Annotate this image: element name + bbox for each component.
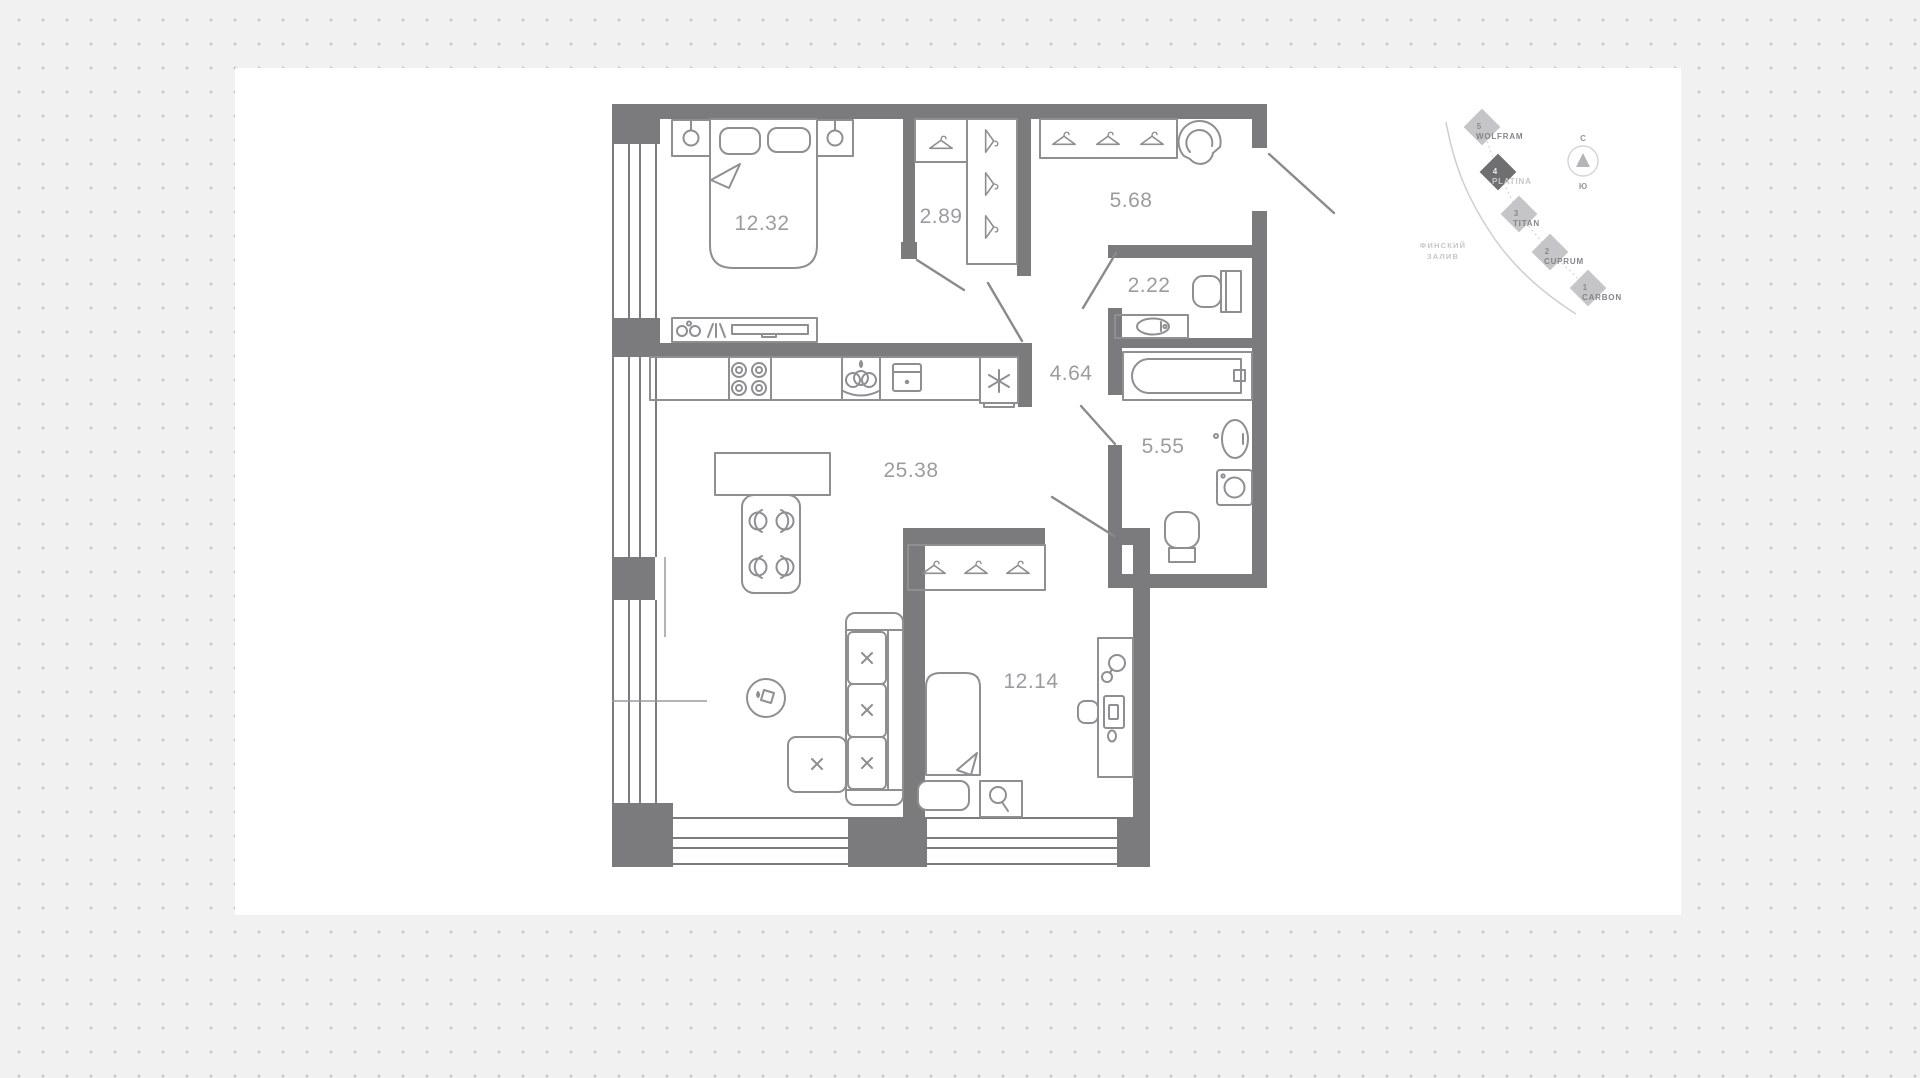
kitchen-counter xyxy=(650,357,1018,407)
page: { "floor_plan": { "rooms": [ {"name": "b… xyxy=(0,0,1920,1078)
room-area-wardrobe: 2.89 xyxy=(920,205,963,228)
wc-sink-icon xyxy=(1115,315,1188,338)
building-name: TITAN xyxy=(1513,219,1540,228)
entry-hall-furniture xyxy=(1040,119,1221,164)
building-marker-titan[interactable]: 3 TITAN xyxy=(1501,196,1540,233)
room-area-bathroom: 5.55 xyxy=(1142,435,1185,458)
kitchen-door-leaf xyxy=(988,283,1022,341)
pillow-icon xyxy=(720,128,760,154)
desk-chair-icon xyxy=(1078,701,1098,723)
water-label-line1: ФИНСКИЙ xyxy=(1420,241,1466,250)
window-left xyxy=(613,144,656,803)
room-area-wc: 2.22 xyxy=(1128,274,1171,297)
lamp-icon xyxy=(684,131,699,146)
building-name: CARBON xyxy=(1582,293,1622,302)
site-map: ФИНСКИЙ ЗАЛИВ 5 WOLFRAM 4 PLATINA 3 TITA… xyxy=(1400,95,1650,325)
building-number: 1 xyxy=(1583,283,1588,292)
stove-icon xyxy=(732,363,766,395)
hanger-icon xyxy=(1141,132,1163,144)
fridge-icon xyxy=(980,357,1018,407)
hanger-rail xyxy=(908,545,1045,590)
water-label-line2: ЗАЛИВ xyxy=(1427,252,1459,261)
bath-sink-icon xyxy=(1214,420,1248,458)
washing-machine-icon xyxy=(1217,470,1252,505)
hanger-icon xyxy=(923,561,945,573)
hanger-icon xyxy=(965,561,987,573)
oven-icon xyxy=(893,364,921,391)
dresser-icon xyxy=(672,318,817,342)
building-number: 2 xyxy=(1545,247,1550,256)
building-name: CUPRUM xyxy=(1544,257,1584,266)
pillow-icon xyxy=(768,128,810,152)
entrance-door-leaf xyxy=(1269,154,1334,213)
building-marker-platina[interactable]: 4 PLATINA xyxy=(1480,154,1532,191)
building-marker-wolfram[interactable]: 5 WOLFRAM xyxy=(1464,109,1524,146)
lamp-icon xyxy=(828,131,843,146)
hanger-icon xyxy=(1053,132,1075,144)
dining-table-icon xyxy=(742,495,800,593)
hanger-icon xyxy=(930,136,952,148)
room-area-hall: 4.64 xyxy=(1050,362,1093,385)
building-marker-carbon[interactable]: 1 CARBON xyxy=(1570,270,1622,307)
island-icon xyxy=(715,453,830,495)
wc-door-leaf xyxy=(1083,253,1116,308)
hanger-icon xyxy=(1007,561,1029,573)
hanger-icon xyxy=(986,173,998,195)
building-number: 4 xyxy=(1493,167,1498,176)
hanger-column xyxy=(967,119,1017,264)
compass-south-label: Ю xyxy=(1579,182,1587,191)
compass: С Ю xyxy=(1568,134,1598,191)
room-area-bedroom-1: 12.32 xyxy=(734,212,789,235)
bathtub-icon xyxy=(1123,352,1252,400)
room-area-kitchen-living: 25.38 xyxy=(883,459,938,482)
building-name: WOLFRAM xyxy=(1476,132,1523,141)
bathroom-door-leaf xyxy=(1081,406,1115,444)
hanger-icon xyxy=(986,130,998,152)
sofa-icon xyxy=(846,613,903,805)
room-area-entry-hall: 5.68 xyxy=(1110,189,1153,212)
building-name: PLATINA xyxy=(1492,177,1532,186)
bedroom-2-door-leaf xyxy=(1052,497,1114,536)
bench-icon xyxy=(918,781,969,810)
wardrobe-door-leaf xyxy=(917,260,964,290)
room-area-bedroom-2: 12.14 xyxy=(1003,670,1058,693)
floor-plan: 12.32 2.89 5.68 2.22 4.64 5.55 25.38 12.… xyxy=(612,104,1352,867)
sink-icon xyxy=(843,361,879,396)
desk-icon xyxy=(1078,638,1133,777)
ottoman-icon xyxy=(788,737,846,792)
floor-lamp-icon xyxy=(980,781,1022,817)
wardrobe-furniture xyxy=(915,119,1017,264)
building-marker-cuprum[interactable]: 2 CUPRUM xyxy=(1532,234,1584,271)
hanger-icon xyxy=(986,216,998,238)
armchair-icon xyxy=(1179,121,1221,164)
compass-north-label: С xyxy=(1580,134,1586,143)
side-table-icon xyxy=(747,679,785,717)
toilet-icon xyxy=(1165,512,1199,562)
toilet-icon xyxy=(1193,271,1241,312)
building-number: 3 xyxy=(1514,209,1519,218)
hanger-icon xyxy=(1097,132,1119,144)
building-number: 5 xyxy=(1477,122,1482,131)
